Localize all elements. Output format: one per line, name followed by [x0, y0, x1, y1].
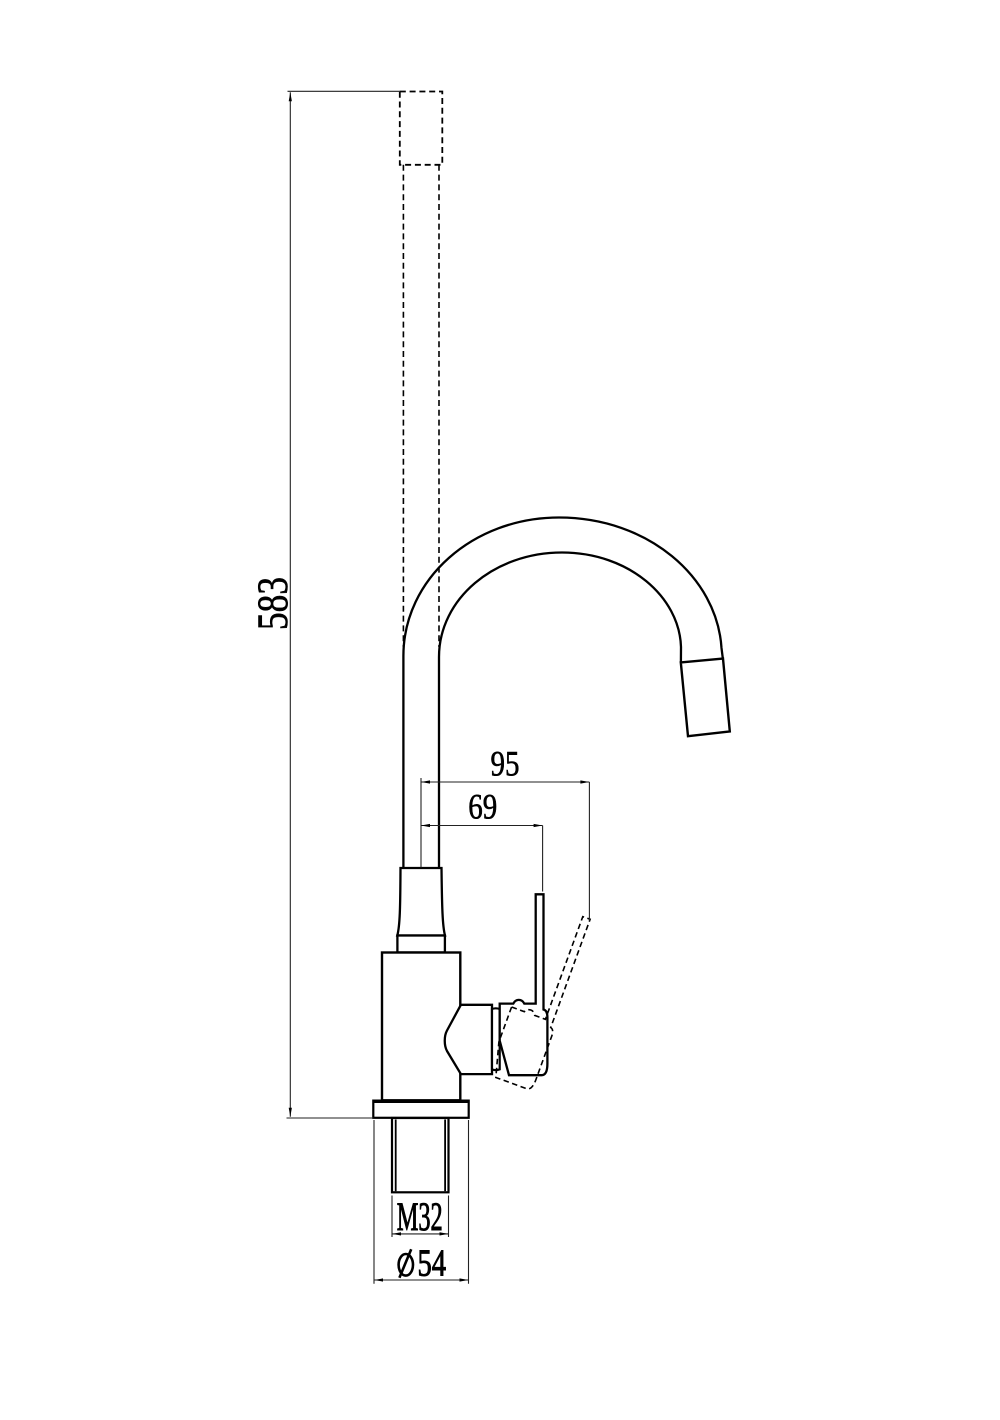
svg-text:M32: M32	[397, 1194, 443, 1239]
svg-text:69: 69	[468, 787, 497, 827]
svg-text:583: 583	[250, 577, 297, 630]
svg-text:54: 54	[418, 1243, 447, 1285]
svg-text:95: 95	[491, 744, 520, 784]
